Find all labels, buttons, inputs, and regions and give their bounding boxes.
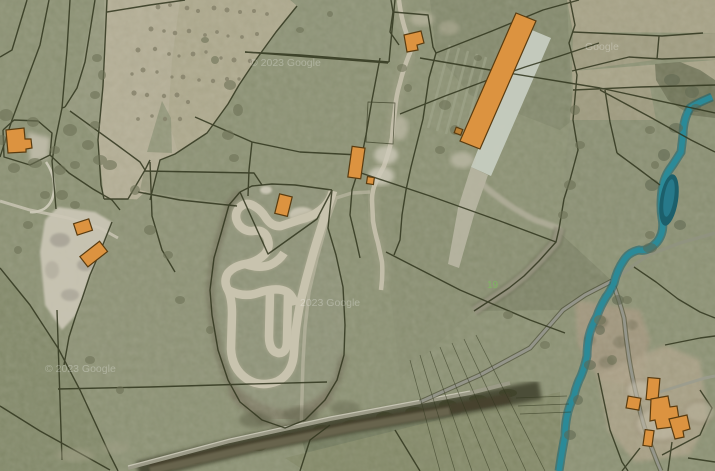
svg-text:Google: Google <box>585 41 619 53</box>
svg-text:2023 Google: 2023 Google <box>300 297 360 309</box>
svg-text:19: 19 <box>487 280 499 291</box>
svg-text:© 2023 Google: © 2023 Google <box>250 57 321 69</box>
svg-text:© 2023 Google: © 2023 Google <box>45 363 116 375</box>
